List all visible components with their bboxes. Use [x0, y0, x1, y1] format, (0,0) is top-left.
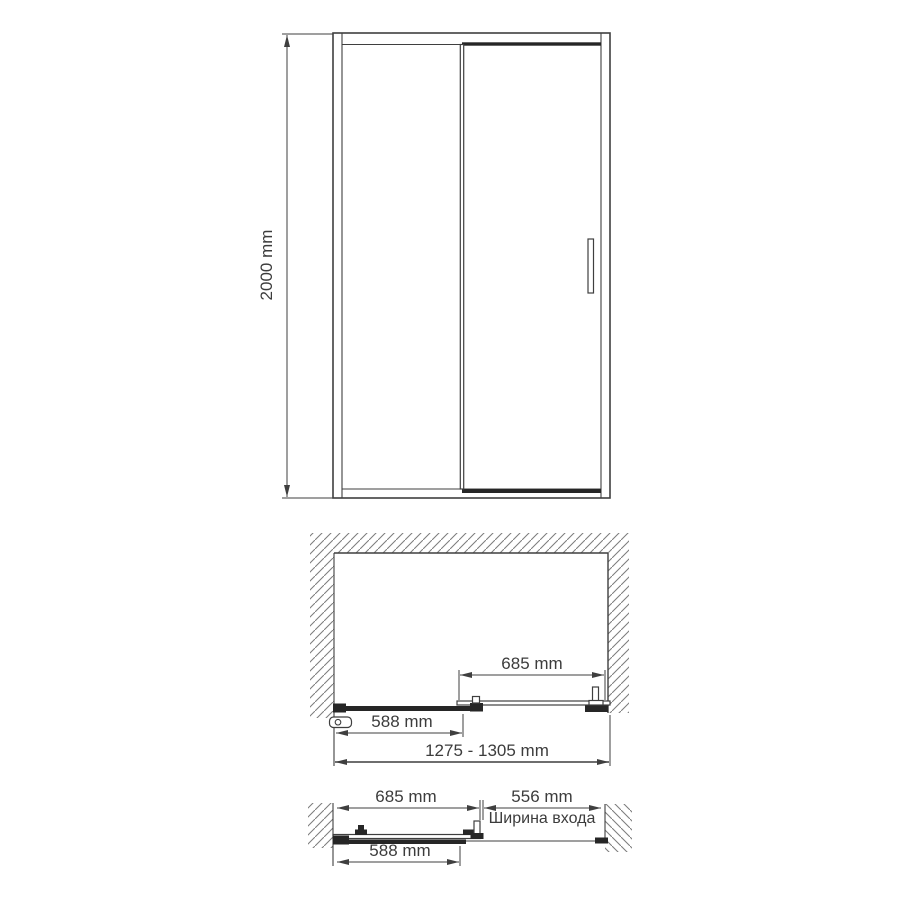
handle-base-closed — [589, 701, 603, 706]
right-end-bracket-closed — [585, 706, 608, 713]
left-wall-bracket-open — [333, 836, 349, 845]
mid-roller-bracket — [470, 703, 483, 712]
door-handle-plan-closed — [593, 687, 599, 701]
plan-view-open: 685 mm 556 mm Ширина входа 588 mm — [308, 787, 632, 866]
entrance-width-dimension-label: 556 mm — [511, 787, 572, 806]
front-elevation-view: 2000 mm — [257, 33, 610, 498]
roller-top-1 — [358, 825, 364, 830]
wall-hatch-open-right — [605, 804, 632, 852]
wall-hatch-open-left — [308, 803, 333, 848]
height-dimension-label: 2000 mm — [257, 230, 276, 301]
door-outer-frame — [333, 33, 610, 498]
center-mullion — [460, 45, 463, 490]
open-fixed-dimension-label: 588 mm — [369, 841, 430, 860]
fixed-panel-dimension-label: 588 mm — [371, 712, 432, 731]
door-panel-dimension-label: 685 mm — [501, 654, 562, 673]
open-door-dimension-label: 685 mm — [375, 787, 436, 806]
slider-top-track — [462, 42, 601, 45]
wall-hatch-closed — [310, 533, 629, 718]
shower-door-technical-drawing: 2000 mm 685 mm — [0, 0, 900, 900]
right-end-bracket-open — [595, 838, 608, 844]
door-handle-front — [588, 239, 594, 293]
overall-width-dimension-label: 1275 - 1305 mm — [425, 741, 549, 760]
mid-roller-top — [473, 697, 480, 704]
handle-base-open — [471, 833, 484, 839]
roller-bracket-1 — [355, 830, 367, 836]
slider-bottom-guide — [462, 489, 601, 493]
left-wall-bracket — [333, 704, 346, 713]
plan-view-closed: 685 mm 588 mm 1275 - 1305 mm — [310, 533, 629, 766]
sliding-panel-open — [333, 835, 480, 839]
entrance-width-caption: Ширина входа — [489, 810, 596, 827]
fixed-panel-plan — [334, 706, 470, 711]
